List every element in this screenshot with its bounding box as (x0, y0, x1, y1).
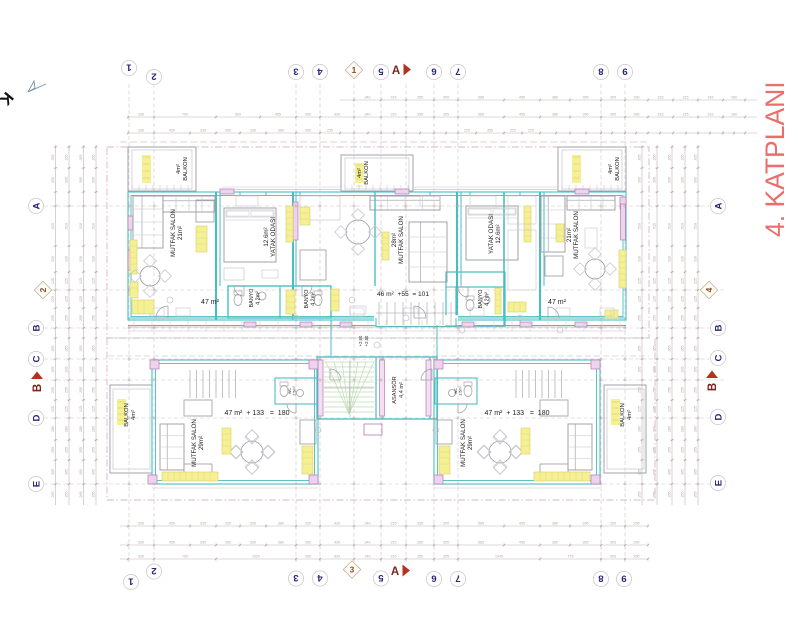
svg-text:1045: 1045 (495, 555, 503, 559)
svg-text:330: 330 (250, 541, 256, 545)
svg-text:1: 1 (128, 576, 134, 587)
svg-text:225: 225 (79, 406, 83, 412)
svg-text:265: 265 (79, 346, 83, 352)
svg-text:265: 265 (638, 346, 642, 352)
svg-text:255: 255 (79, 447, 83, 453)
svg-text:265: 265 (653, 155, 657, 161)
svg-text:255: 255 (65, 315, 69, 321)
svg-text:47 m² + 133 = 180: 47 m² + 133 = 180 (225, 410, 290, 417)
svg-text:255: 255 (327, 129, 333, 133)
svg-text:ASANSÖR: ASANSÖR (391, 376, 398, 403)
svg-text:265: 265 (79, 367, 83, 373)
svg-text:255: 255 (51, 315, 55, 321)
svg-text:280: 280 (694, 426, 698, 432)
svg-text:C: C (713, 354, 724, 361)
svg-text:430: 430 (334, 555, 340, 559)
svg-text:255: 255 (79, 315, 83, 321)
svg-text:305: 305 (681, 469, 685, 475)
svg-text:225: 225 (653, 278, 657, 284)
svg-text:340: 340 (365, 96, 371, 100)
svg-text:265: 265 (681, 492, 685, 498)
svg-text:560: 560 (235, 113, 241, 117)
svg-text:47 m²: 47 m² (548, 299, 567, 306)
svg-text:4m²: 4m² (357, 168, 363, 178)
svg-text:265: 265 (92, 492, 96, 498)
svg-text:255: 255 (92, 315, 96, 321)
svg-text:265: 265 (79, 492, 83, 498)
svg-text:29m²: 29m² (467, 436, 474, 450)
svg-text:225: 225 (51, 406, 55, 412)
svg-text:4: 4 (317, 572, 323, 583)
svg-text:E: E (31, 480, 42, 487)
svg-text:355: 355 (417, 522, 423, 526)
svg-text:BALKON: BALKON (364, 161, 370, 185)
svg-text:340: 340 (365, 113, 371, 117)
svg-text:330: 330 (694, 256, 698, 262)
svg-text:4m²: 4m² (608, 164, 614, 174)
svg-text:305: 305 (694, 469, 698, 475)
svg-text:A: A (391, 566, 399, 578)
svg-text:510: 510 (638, 223, 642, 229)
svg-text:4: 4 (704, 287, 714, 292)
svg-text:330: 330 (138, 522, 144, 526)
svg-text:265: 265 (668, 346, 672, 352)
svg-text:305: 305 (668, 469, 672, 475)
svg-text:305: 305 (92, 469, 96, 475)
svg-text:265: 265 (653, 367, 657, 373)
svg-text:305: 305 (305, 555, 311, 559)
svg-text:330: 330 (653, 256, 657, 262)
svg-text:225: 225 (51, 278, 55, 284)
svg-text:290: 290 (634, 113, 640, 117)
svg-text:225: 225 (668, 296, 672, 302)
svg-text:2.5m²: 2.5m² (293, 386, 297, 396)
svg-text:330: 330 (638, 256, 642, 262)
svg-text:455: 455 (519, 522, 525, 526)
svg-text:21m²: 21m² (566, 228, 573, 242)
svg-text:BALKON: BALKON (620, 403, 626, 427)
svg-text:265: 265 (51, 367, 55, 373)
svg-text:225: 225 (681, 406, 685, 412)
svg-text:455: 455 (169, 129, 175, 133)
svg-text:330: 330 (138, 113, 144, 117)
svg-text:305: 305 (653, 177, 657, 183)
svg-text:305: 305 (681, 177, 685, 183)
svg-text:E: E (713, 479, 724, 486)
svg-text:305: 305 (610, 541, 616, 545)
svg-text:340: 340 (365, 522, 371, 526)
svg-text:265: 265 (681, 155, 685, 161)
svg-text:255: 255 (653, 387, 657, 393)
svg-text:305: 305 (610, 113, 616, 117)
svg-text:225: 225 (653, 406, 657, 412)
svg-text:315: 315 (391, 555, 397, 559)
svg-text:395: 395 (583, 113, 589, 117)
svg-text:265: 265 (668, 155, 672, 161)
svg-text:510: 510 (65, 223, 69, 229)
svg-text:2: 2 (151, 71, 156, 82)
svg-text:+2,60: +2,60 (358, 335, 363, 346)
svg-text:330: 330 (92, 256, 96, 262)
svg-text:225: 225 (510, 129, 516, 133)
svg-text:255: 255 (653, 315, 657, 321)
svg-text:255: 255 (638, 387, 642, 393)
svg-text:1020: 1020 (252, 555, 260, 559)
svg-text:305: 305 (694, 177, 698, 183)
svg-text:4. KATPLANI: 4. KATPLANI (760, 81, 790, 237)
svg-text:225: 225 (528, 129, 534, 133)
svg-text:265: 265 (694, 492, 698, 498)
svg-text:280: 280 (51, 426, 55, 432)
svg-text:12.6m²: 12.6m² (495, 224, 502, 243)
svg-text:315: 315 (391, 96, 397, 100)
svg-text:225: 225 (464, 129, 470, 133)
svg-text:28m²: 28m² (391, 233, 398, 247)
svg-text:315: 315 (658, 96, 664, 100)
svg-text:315: 315 (708, 113, 714, 117)
svg-text:3: 3 (350, 565, 355, 575)
svg-text:280: 280 (653, 426, 657, 432)
svg-text:265: 265 (694, 155, 698, 161)
svg-text:455: 455 (519, 541, 525, 545)
svg-text:265: 265 (681, 367, 685, 373)
svg-text:790: 790 (182, 113, 188, 117)
svg-text:355: 355 (417, 555, 423, 559)
svg-text:29m²: 29m² (198, 436, 205, 450)
svg-text:255: 255 (65, 387, 69, 393)
svg-text:4m²: 4m² (176, 164, 182, 174)
svg-text:280: 280 (92, 426, 96, 432)
svg-text:775: 775 (568, 555, 574, 559)
svg-text:WC: WC (454, 388, 458, 394)
svg-text:4,4 m²: 4,4 m² (399, 382, 405, 398)
svg-text:A: A (31, 202, 42, 209)
svg-text:2: 2 (151, 565, 156, 576)
svg-text:YATAK ODASI: YATAK ODASI (488, 214, 495, 254)
svg-text:355: 355 (417, 541, 423, 545)
svg-text:395: 395 (583, 522, 589, 526)
svg-text:255: 255 (668, 387, 672, 393)
svg-text:315: 315 (658, 113, 664, 117)
svg-text:265: 265 (694, 346, 698, 352)
svg-text:305: 305 (443, 96, 449, 100)
svg-text:3: 3 (293, 66, 298, 77)
svg-text:395: 395 (583, 541, 589, 545)
svg-text:330: 330 (79, 256, 83, 262)
svg-text:B: B (31, 324, 42, 331)
svg-text:9: 9 (621, 573, 626, 584)
svg-text:7: 7 (455, 573, 460, 584)
svg-text:380: 380 (278, 129, 284, 133)
svg-text:380: 380 (278, 522, 284, 526)
svg-text:5: 5 (378, 66, 384, 77)
svg-text:430: 430 (334, 113, 340, 117)
svg-text:225: 225 (638, 278, 642, 284)
svg-text:340: 340 (365, 555, 371, 559)
svg-text:255: 255 (51, 447, 55, 453)
svg-text:255: 255 (681, 315, 685, 321)
svg-text:315: 315 (708, 96, 714, 100)
svg-text:3: 3 (293, 572, 298, 583)
svg-text:265: 265 (653, 346, 657, 352)
svg-text:225: 225 (694, 296, 698, 302)
svg-text:BALKON: BALKON (124, 403, 130, 427)
svg-text:BALKON: BALKON (183, 157, 189, 181)
svg-text:585: 585 (478, 96, 484, 100)
svg-text:MUTFAK SALON: MUTFAK SALON (398, 216, 405, 264)
svg-text:355: 355 (487, 129, 493, 133)
svg-text:280: 280 (731, 96, 737, 100)
svg-text:D: D (713, 413, 724, 420)
svg-text:255: 255 (638, 315, 642, 321)
svg-text:265: 265 (681, 346, 685, 352)
svg-text:A: A (392, 65, 400, 77)
svg-text:280: 280 (65, 426, 69, 432)
svg-text:A: A (713, 202, 724, 209)
svg-text:330: 330 (681, 256, 685, 262)
svg-text:315: 315 (391, 113, 397, 117)
svg-text:585: 585 (478, 113, 484, 117)
svg-text:380: 380 (552, 113, 558, 117)
svg-text:510: 510 (681, 223, 685, 229)
svg-text:225: 225 (653, 296, 657, 302)
svg-text:255: 255 (65, 447, 69, 453)
svg-text:315: 315 (391, 522, 397, 526)
svg-text:510: 510 (668, 223, 672, 229)
svg-text:330: 330 (138, 129, 144, 133)
svg-text:255: 255 (638, 447, 642, 453)
svg-text:305: 305 (305, 541, 311, 545)
svg-text:510: 510 (79, 223, 83, 229)
svg-text:255: 255 (92, 387, 96, 393)
svg-text:225: 225 (92, 278, 96, 284)
svg-text:225: 225 (638, 406, 642, 412)
svg-text:305: 305 (79, 177, 83, 183)
svg-text:225: 225 (79, 296, 83, 302)
svg-text:315: 315 (683, 113, 689, 117)
svg-text:4m²: 4m² (627, 410, 633, 420)
svg-text:MUTFAK SALON: MUTFAK SALON (460, 419, 467, 467)
svg-text:510: 510 (51, 223, 55, 229)
svg-text:225: 225 (92, 406, 96, 412)
svg-text:8: 8 (598, 573, 604, 584)
svg-text:305: 305 (443, 541, 449, 545)
svg-text:225: 225 (65, 296, 69, 302)
svg-text:8: 8 (598, 66, 604, 77)
svg-text:305: 305 (443, 522, 449, 526)
svg-text:255: 255 (92, 447, 96, 453)
svg-text:330: 330 (200, 541, 206, 545)
svg-text:305: 305 (51, 177, 55, 183)
svg-text:255: 255 (79, 387, 83, 393)
svg-text:255: 255 (51, 387, 55, 393)
svg-text:255: 255 (681, 387, 685, 393)
svg-text:380: 380 (278, 541, 284, 545)
svg-text:B: B (32, 384, 44, 392)
svg-text:265: 265 (79, 155, 83, 161)
svg-text:330: 330 (200, 129, 206, 133)
svg-text:46 m² +55 = 101: 46 m² +55 = 101 (377, 291, 429, 298)
svg-text:330: 330 (138, 541, 144, 545)
svg-text:305: 305 (610, 555, 616, 559)
svg-text:4.2m²: 4.2m² (310, 292, 316, 306)
svg-text:305: 305 (305, 113, 311, 117)
svg-text:455: 455 (169, 541, 175, 545)
svg-text:225: 225 (51, 296, 55, 302)
svg-text:255: 255 (694, 447, 698, 453)
svg-text:21m²: 21m² (177, 226, 184, 240)
svg-text:290: 290 (634, 541, 640, 545)
svg-text:265: 265 (668, 367, 672, 373)
svg-text:9: 9 (622, 66, 627, 77)
svg-text:265: 265 (653, 492, 657, 498)
svg-text:255: 255 (668, 315, 672, 321)
svg-text:305: 305 (225, 541, 231, 545)
svg-text:305: 305 (653, 469, 657, 475)
svg-text:305: 305 (92, 177, 96, 183)
svg-text:225: 225 (668, 406, 672, 412)
svg-text:290: 290 (634, 522, 640, 526)
svg-text:1: 1 (126, 62, 132, 73)
svg-text:5: 5 (378, 572, 384, 583)
svg-text:510: 510 (653, 223, 657, 229)
svg-text:225: 225 (65, 406, 69, 412)
svg-text:265: 265 (638, 492, 642, 498)
svg-text:225: 225 (92, 296, 96, 302)
svg-text:305: 305 (638, 177, 642, 183)
svg-text:395: 395 (583, 96, 589, 100)
svg-text:255: 255 (653, 447, 657, 453)
svg-text:305: 305 (65, 177, 69, 183)
svg-text:265: 265 (638, 155, 642, 161)
svg-text:280: 280 (731, 113, 737, 117)
svg-text:47 m²: 47 m² (201, 299, 220, 306)
svg-text:255: 255 (694, 387, 698, 393)
svg-text:225: 225 (638, 296, 642, 302)
svg-text:265: 265 (92, 155, 96, 161)
svg-text:510: 510 (92, 223, 96, 229)
svg-text:225: 225 (65, 278, 69, 284)
svg-text:265: 265 (65, 492, 69, 498)
svg-text:305: 305 (610, 96, 616, 100)
svg-text:355: 355 (417, 113, 423, 117)
svg-text:265: 265 (51, 492, 55, 498)
svg-text:2: 2 (38, 287, 48, 292)
svg-text:+2,50: +2,50 (364, 335, 369, 346)
svg-text:265: 265 (51, 155, 55, 161)
svg-text:265: 265 (65, 155, 69, 161)
svg-text:455: 455 (519, 96, 525, 100)
svg-text:305: 305 (79, 469, 83, 475)
svg-text:MUTFAK SALON: MUTFAK SALON (191, 419, 198, 467)
svg-text:330: 330 (200, 522, 206, 526)
svg-text:4m²: 4m² (131, 410, 137, 420)
svg-text:265: 265 (92, 367, 96, 373)
svg-text:WC: WC (288, 388, 292, 394)
svg-text:455: 455 (169, 522, 175, 526)
svg-text:455: 455 (519, 113, 525, 117)
svg-text:330: 330 (250, 522, 256, 526)
svg-text:280: 280 (79, 426, 83, 432)
svg-text:255: 255 (694, 315, 698, 321)
svg-text:280: 280 (681, 426, 685, 432)
svg-text:305: 305 (305, 129, 311, 133)
svg-text:225: 225 (681, 278, 685, 284)
svg-text:265: 265 (65, 346, 69, 352)
svg-text:12.6m²: 12.6m² (263, 227, 270, 246)
svg-text:305: 305 (51, 469, 55, 475)
svg-text:265: 265 (92, 346, 96, 352)
svg-text:280: 280 (638, 426, 642, 432)
svg-text:330: 330 (668, 256, 672, 262)
svg-text:265: 265 (65, 367, 69, 373)
svg-text:D: D (31, 414, 42, 421)
svg-text:305: 305 (305, 522, 311, 526)
svg-text:265: 265 (694, 367, 698, 373)
svg-text:265: 265 (638, 367, 642, 373)
svg-text:4.2m²: 4.2m² (255, 291, 261, 305)
svg-text:MUTFAK SALON: MUTFAK SALON (170, 209, 177, 257)
svg-text:305: 305 (225, 129, 231, 133)
svg-text:4.2m²: 4.2m² (484, 292, 490, 306)
svg-text:YATAK ODASI: YATAK ODASI (270, 217, 277, 257)
svg-text:47 m² + 133 = 180: 47 m² + 133 = 180 (485, 410, 550, 417)
svg-text:4: 4 (317, 66, 323, 77)
svg-text:BANYO: BANYO (304, 290, 310, 309)
svg-text:MUTFAK SALON: MUTFAK SALON (573, 211, 580, 259)
svg-text:265: 265 (51, 346, 55, 352)
svg-text:330: 330 (138, 555, 144, 559)
svg-text:C: C (31, 355, 42, 362)
svg-text:585: 585 (478, 522, 484, 526)
svg-text:340: 340 (365, 541, 371, 545)
svg-text:225: 225 (681, 296, 685, 302)
svg-text:290: 290 (634, 96, 640, 100)
svg-text:225: 225 (694, 278, 698, 284)
svg-text:380: 380 (552, 522, 558, 526)
svg-text:225: 225 (668, 278, 672, 284)
svg-text:255: 255 (681, 447, 685, 453)
svg-text:380: 380 (552, 541, 558, 545)
svg-text:355: 355 (417, 96, 423, 100)
svg-text:330: 330 (65, 256, 69, 262)
svg-text:305: 305 (65, 469, 69, 475)
svg-text:6: 6 (431, 573, 436, 584)
svg-text:430: 430 (334, 522, 340, 526)
svg-text:305: 305 (610, 522, 616, 526)
svg-text:330: 330 (51, 256, 55, 262)
svg-text:305: 305 (225, 522, 231, 526)
svg-text:380: 380 (552, 96, 558, 100)
svg-text:315: 315 (391, 541, 397, 545)
svg-text:2.5m²: 2.5m² (459, 386, 463, 396)
svg-text:225: 225 (694, 406, 698, 412)
svg-text:1: 1 (352, 65, 357, 75)
svg-text:BANYO: BANYO (249, 289, 255, 308)
svg-text:305: 305 (668, 177, 672, 183)
svg-text:305: 305 (443, 555, 449, 559)
svg-text:430: 430 (334, 541, 340, 545)
svg-text:330: 330 (250, 129, 256, 133)
svg-text:510: 510 (694, 223, 698, 229)
svg-text:225: 225 (79, 278, 83, 284)
svg-text:290: 290 (634, 555, 640, 559)
svg-text:6: 6 (431, 66, 436, 77)
svg-text:BANYO: BANYO (478, 290, 484, 309)
svg-text:315: 315 (683, 96, 689, 100)
svg-text:255: 255 (668, 447, 672, 453)
svg-text:455: 455 (275, 113, 281, 117)
